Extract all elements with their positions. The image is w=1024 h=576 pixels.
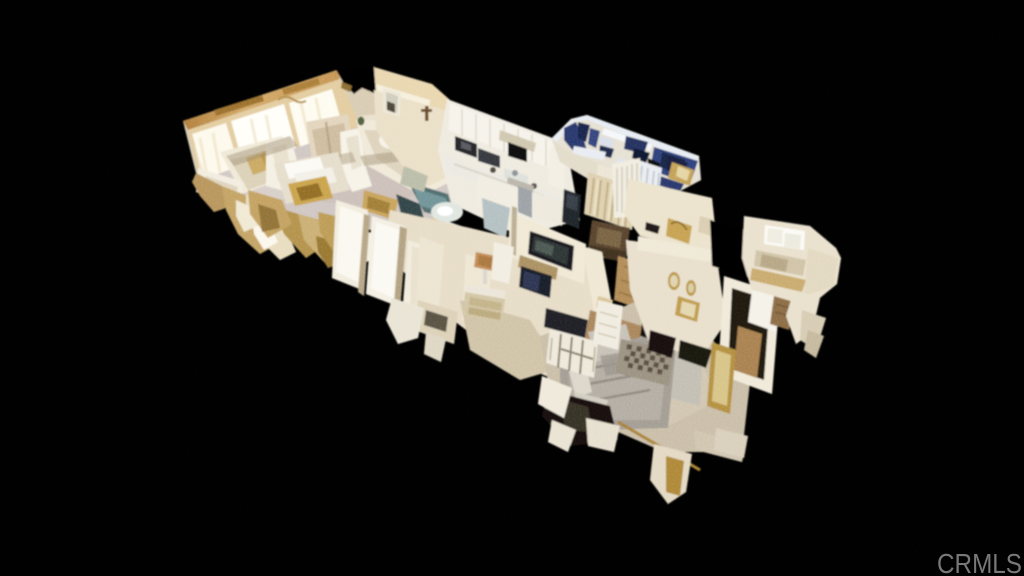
svg-text:CRMLS: CRMLS <box>937 548 1022 576</box>
